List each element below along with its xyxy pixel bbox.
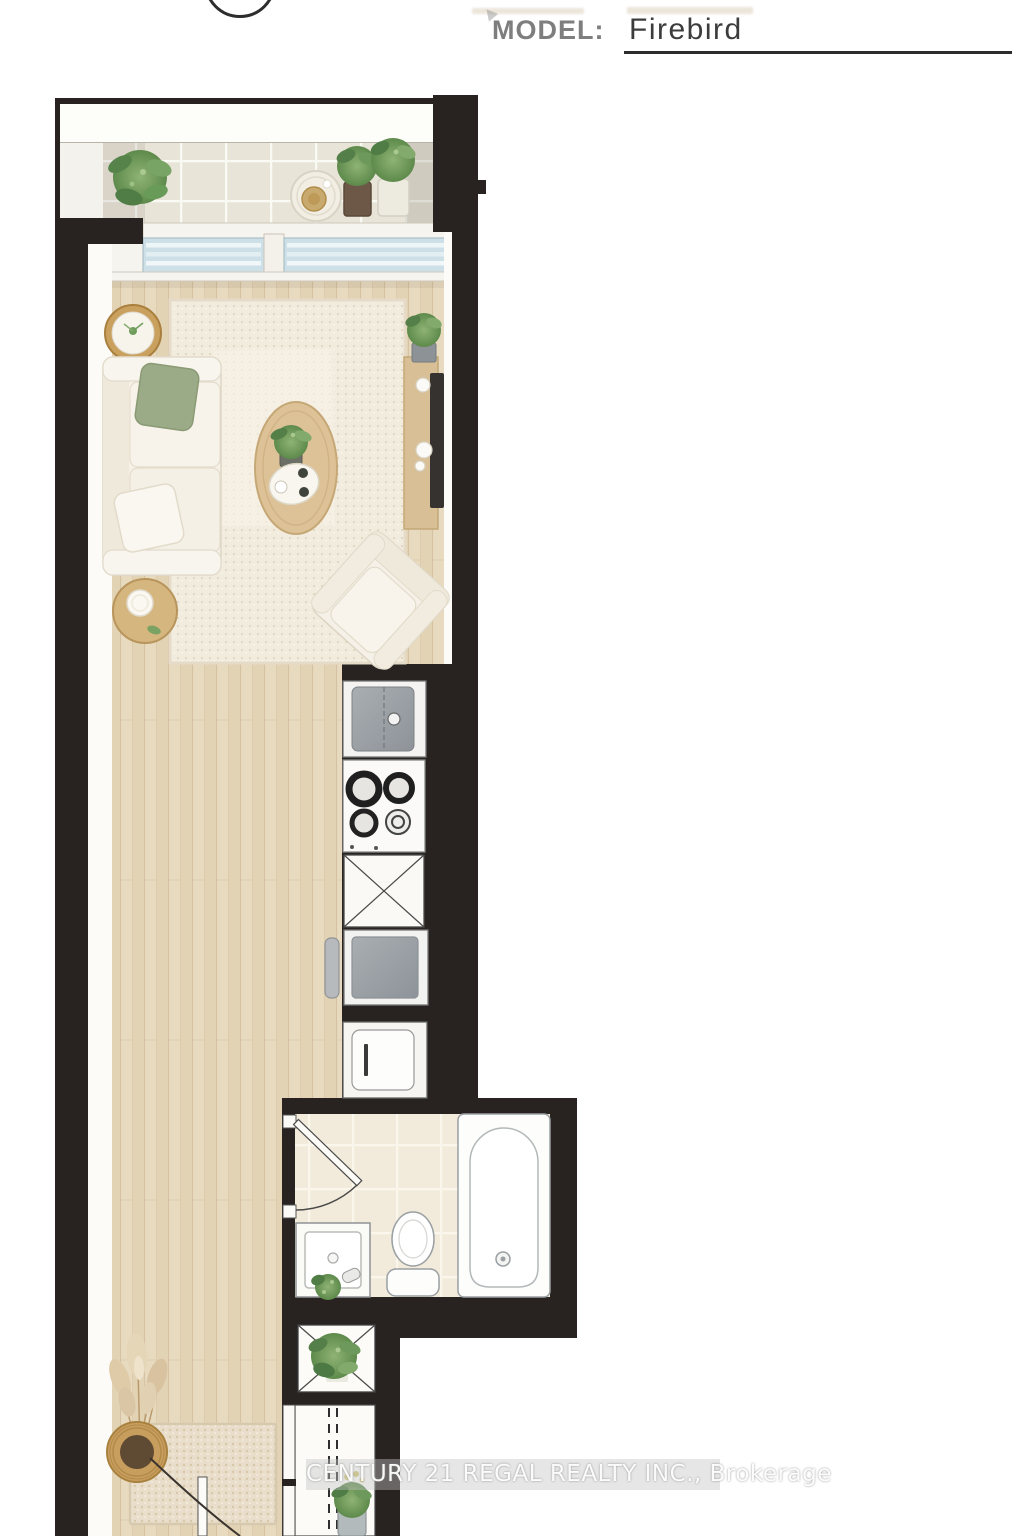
door-jamb [283,1115,296,1128]
cooktop [343,760,425,852]
window-mullion [264,234,284,276]
burner [349,774,379,804]
bathtub [458,1114,550,1297]
wall-bath-bottom-right [380,1297,577,1338]
fridge-handle [388,713,400,725]
refrigerator [343,681,426,757]
toilet [387,1212,439,1296]
bathroom [283,1114,550,1300]
coffee-table [255,402,337,534]
tv [430,373,444,508]
burner [386,775,412,801]
tv-console [404,357,444,529]
green-pillow [134,362,200,431]
wall-tick [478,180,486,194]
console-decor [416,378,430,392]
toilet-tank [387,1269,439,1296]
dishwasher-cabinet [343,1022,427,1098]
cabinet-handle [364,1044,368,1076]
vanity-sink [296,1223,370,1300]
burner [386,810,410,834]
window-frame-bottom [108,272,452,281]
sofa-armrest-bottom [103,550,221,575]
console-decor [415,461,425,471]
sectional-sofa [103,357,221,575]
balcony-upper-slab [59,102,433,143]
wall-bath-top [282,1098,577,1114]
candle [127,590,153,616]
sliding-glass-door [108,223,452,281]
burner [352,811,376,835]
balcony-bistro-table [291,171,341,221]
door-jamb [283,1205,296,1218]
brokerage-watermark: CENTURY 21 REGAL REALTY INC., Brokerage [306,1459,720,1490]
glass-panel-left [143,238,264,272]
balcony [59,102,433,223]
balcony-side-return [59,143,103,223]
window-sill [143,223,452,238]
wall-bath-right [550,1114,577,1300]
white-pillow [112,482,185,554]
side-table-top [105,305,161,361]
wall-right-column [433,95,478,232]
glass-panel-right [284,238,448,272]
wall-corner-block [55,218,143,244]
console-decor [416,442,432,458]
closet-shelf-unit [298,1325,375,1392]
faucet-bar [325,938,339,998]
side-table-bottom [113,579,177,643]
counter-cabinet [344,855,424,927]
closet-door-jamb [283,1405,295,1536]
wall-left [55,242,88,1536]
wall-right-living [452,232,478,664]
floorplan-drawing [0,0,1024,1536]
